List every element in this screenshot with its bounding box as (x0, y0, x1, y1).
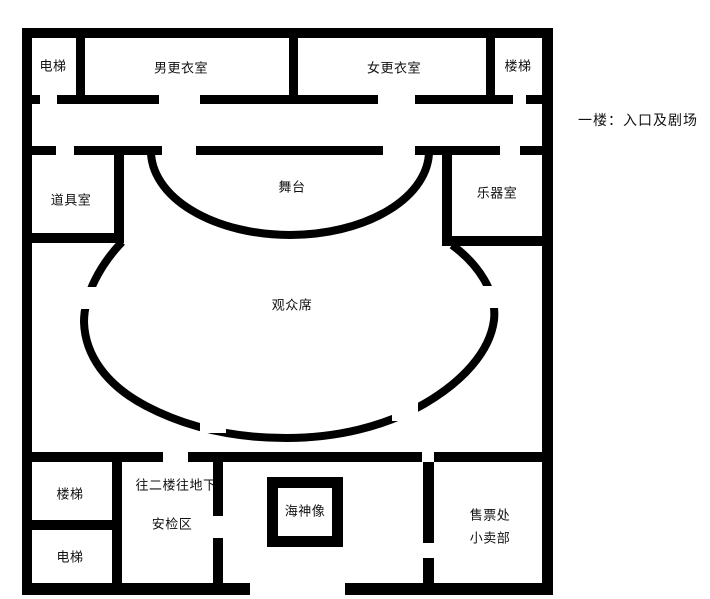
room-label-mens-changing-room: 男更衣室 (154, 58, 208, 77)
curved-walls-layer (0, 0, 710, 599)
room-label-security-check-area: 安检区 (152, 514, 193, 533)
floor-plan-canvas: 电梯男更衣室女更衣室楼梯道具室舞台乐器室观众席楼梯电梯往二楼往地下安检区海神像售… (0, 0, 710, 599)
room-label-kiosk: 小卖部 (470, 528, 511, 547)
room-label-elevator-top: 电梯 (39, 56, 66, 75)
room-label-audience-seating: 观众席 (272, 295, 313, 314)
room-label-ticket-office: 售票处 (470, 505, 511, 524)
room-label-womens-changing-room: 女更衣室 (367, 58, 421, 77)
doorway-gap-bottom-left (200, 407, 226, 433)
room-label-to-second-floor-basement: 往二楼往地下 (135, 475, 216, 494)
doorway-gap-right (477, 286, 500, 308)
room-label-instrument-room: 乐器室 (477, 183, 518, 202)
doorway-gap-left (74, 287, 97, 309)
room-label-props-room: 道具室 (51, 190, 92, 209)
floor-title: 一楼：入口及剧场 (578, 110, 698, 130)
room-label-stairs-bottom: 楼梯 (56, 484, 83, 503)
room-label-stage: 舞台 (278, 177, 305, 196)
room-label-elevator-bottom: 电梯 (56, 547, 83, 566)
audience-boundary-arc (84, 242, 494, 438)
room-label-stairs-top: 楼梯 (504, 56, 531, 75)
doorway-gap-bottom-right (392, 395, 418, 421)
room-label-poseidon-statue: 海神像 (285, 501, 326, 520)
